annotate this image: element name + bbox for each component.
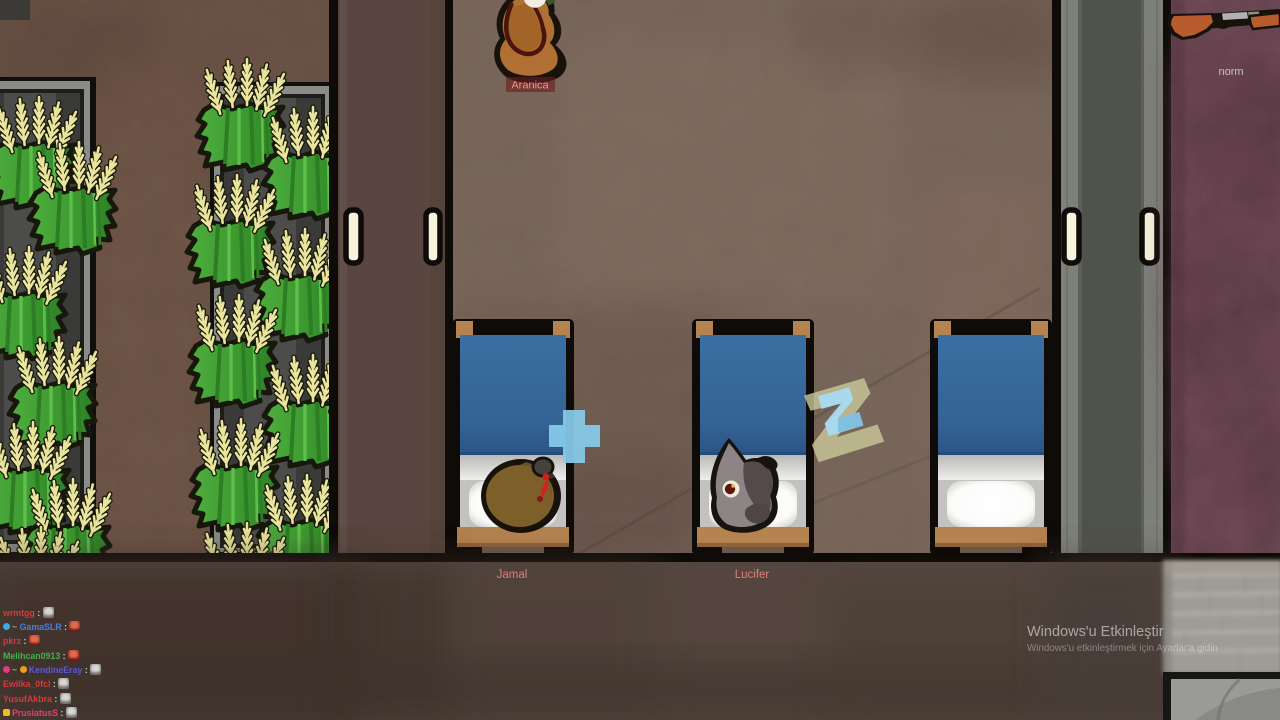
svg-text:Jamal: Jamal [497, 569, 528, 581]
svg-text:Lucifer: Lucifer [735, 569, 770, 581]
svg-text:Aranica: Aranica [511, 80, 549, 92]
svg-text:norm: norm [1218, 66, 1243, 78]
